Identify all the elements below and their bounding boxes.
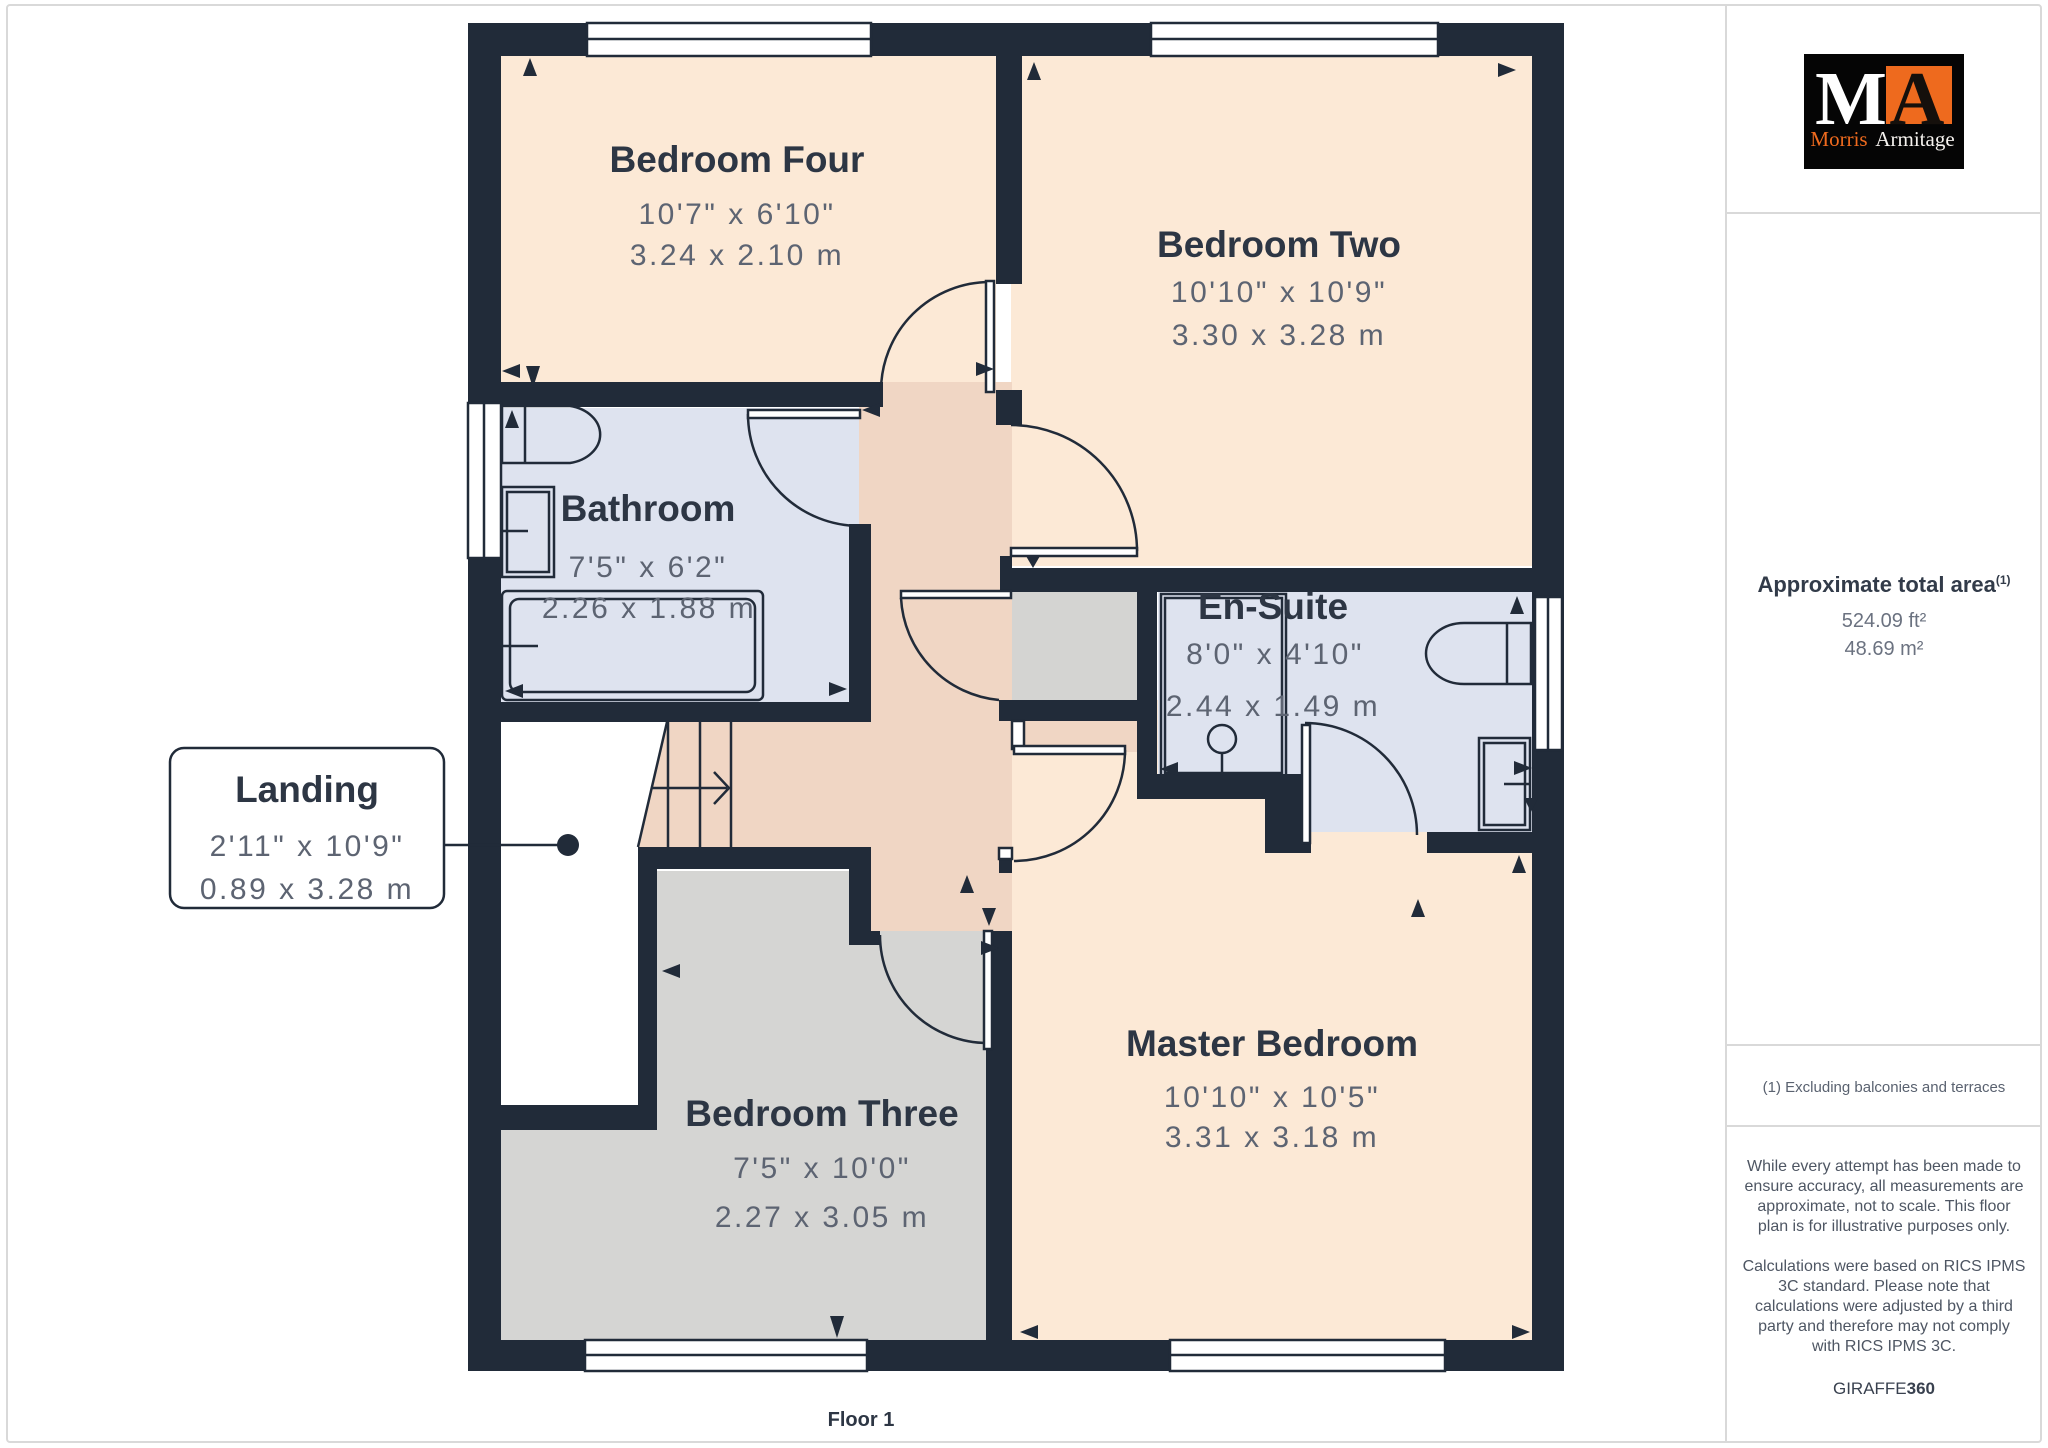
svg-text:8'0" x 4'10": 8'0" x 4'10": [1186, 638, 1364, 671]
svg-text:0.89 x 3.28 m: 0.89 x 3.28 m: [200, 873, 414, 906]
svg-text:3C standard. Please note that: 3C standard. Please note that: [1778, 1278, 1990, 1295]
svg-text:GIRAFFE360: GIRAFFE360: [1833, 1379, 1935, 1398]
svg-text:2.27 x 3.05 m: 2.27 x 3.05 m: [715, 1201, 929, 1234]
svg-text:Floor 1: Floor 1: [828, 1409, 895, 1431]
svg-text:10'7" x 6'10": 10'7" x 6'10": [638, 198, 835, 231]
svg-text:calculations were adjusted by: calculations were adjusted by a third: [1755, 1298, 2013, 1315]
svg-text:3.31 x 3.18 m: 3.31 x 3.18 m: [1165, 1121, 1379, 1154]
svg-text:(1) Excluding balconies and te: (1) Excluding balconies and terraces: [1763, 1079, 2006, 1096]
svg-text:10'10" x 10'9": 10'10" x 10'9": [1171, 276, 1387, 309]
svg-text:Bedroom Three: Bedroom Three: [685, 1093, 958, 1134]
svg-text:ensure accuracy, all measureme: ensure accuracy, all measurements are: [1745, 1178, 2024, 1195]
svg-text:Bathroom: Bathroom: [561, 488, 736, 529]
svg-text:While every attempt has been m: While every attempt has been made to: [1747, 1158, 2021, 1175]
svg-text:Master Bedroom: Master Bedroom: [1126, 1023, 1418, 1064]
svg-text:Armitage: Armitage: [1875, 127, 1954, 151]
svg-text:Morris: Morris: [1810, 127, 1867, 151]
svg-text:Bedroom Four: Bedroom Four: [610, 139, 865, 180]
svg-text:approximate, not to scale. Thi: approximate, not to scale. This floor: [1757, 1198, 2011, 1215]
svg-text:Bedroom Two: Bedroom Two: [1157, 224, 1401, 265]
svg-text:3.24 x 2.10 m: 3.24 x 2.10 m: [630, 239, 844, 272]
svg-text:En-Suite: En-Suite: [1198, 586, 1348, 627]
svg-text:7'5" x 6'2": 7'5" x 6'2": [569, 551, 728, 584]
svg-text:2.44 x 1.49 m: 2.44 x 1.49 m: [1166, 690, 1380, 723]
svg-text:524.09 ft²: 524.09 ft²: [1842, 610, 1927, 632]
svg-text:Calculations were based on RIC: Calculations were based on RICS IPMS: [1743, 1258, 2026, 1275]
svg-text:Landing: Landing: [235, 769, 379, 810]
svg-text:2'11" x 10'9": 2'11" x 10'9": [210, 830, 405, 863]
svg-text:plan is for illustrative purpo: plan is for illustrative purposes only.: [1758, 1218, 2010, 1235]
svg-text:party and therefore may not co: party and therefore may not comply: [1758, 1318, 2010, 1335]
svg-text:with RICS IPMS 3C.: with RICS IPMS 3C.: [1811, 1338, 1956, 1355]
svg-text:3.30 x 3.28 m: 3.30 x 3.28 m: [1172, 319, 1386, 352]
svg-text:10'10" x 10'5": 10'10" x 10'5": [1164, 1081, 1380, 1114]
svg-text:48.69 m²: 48.69 m²: [1845, 638, 1924, 660]
svg-text:7'5" x 10'0": 7'5" x 10'0": [733, 1152, 911, 1185]
svg-text:Approximate total area(1): Approximate total area(1): [1757, 572, 2010, 597]
svg-text:2.26 x 1.88 m: 2.26 x 1.88 m: [542, 592, 756, 625]
